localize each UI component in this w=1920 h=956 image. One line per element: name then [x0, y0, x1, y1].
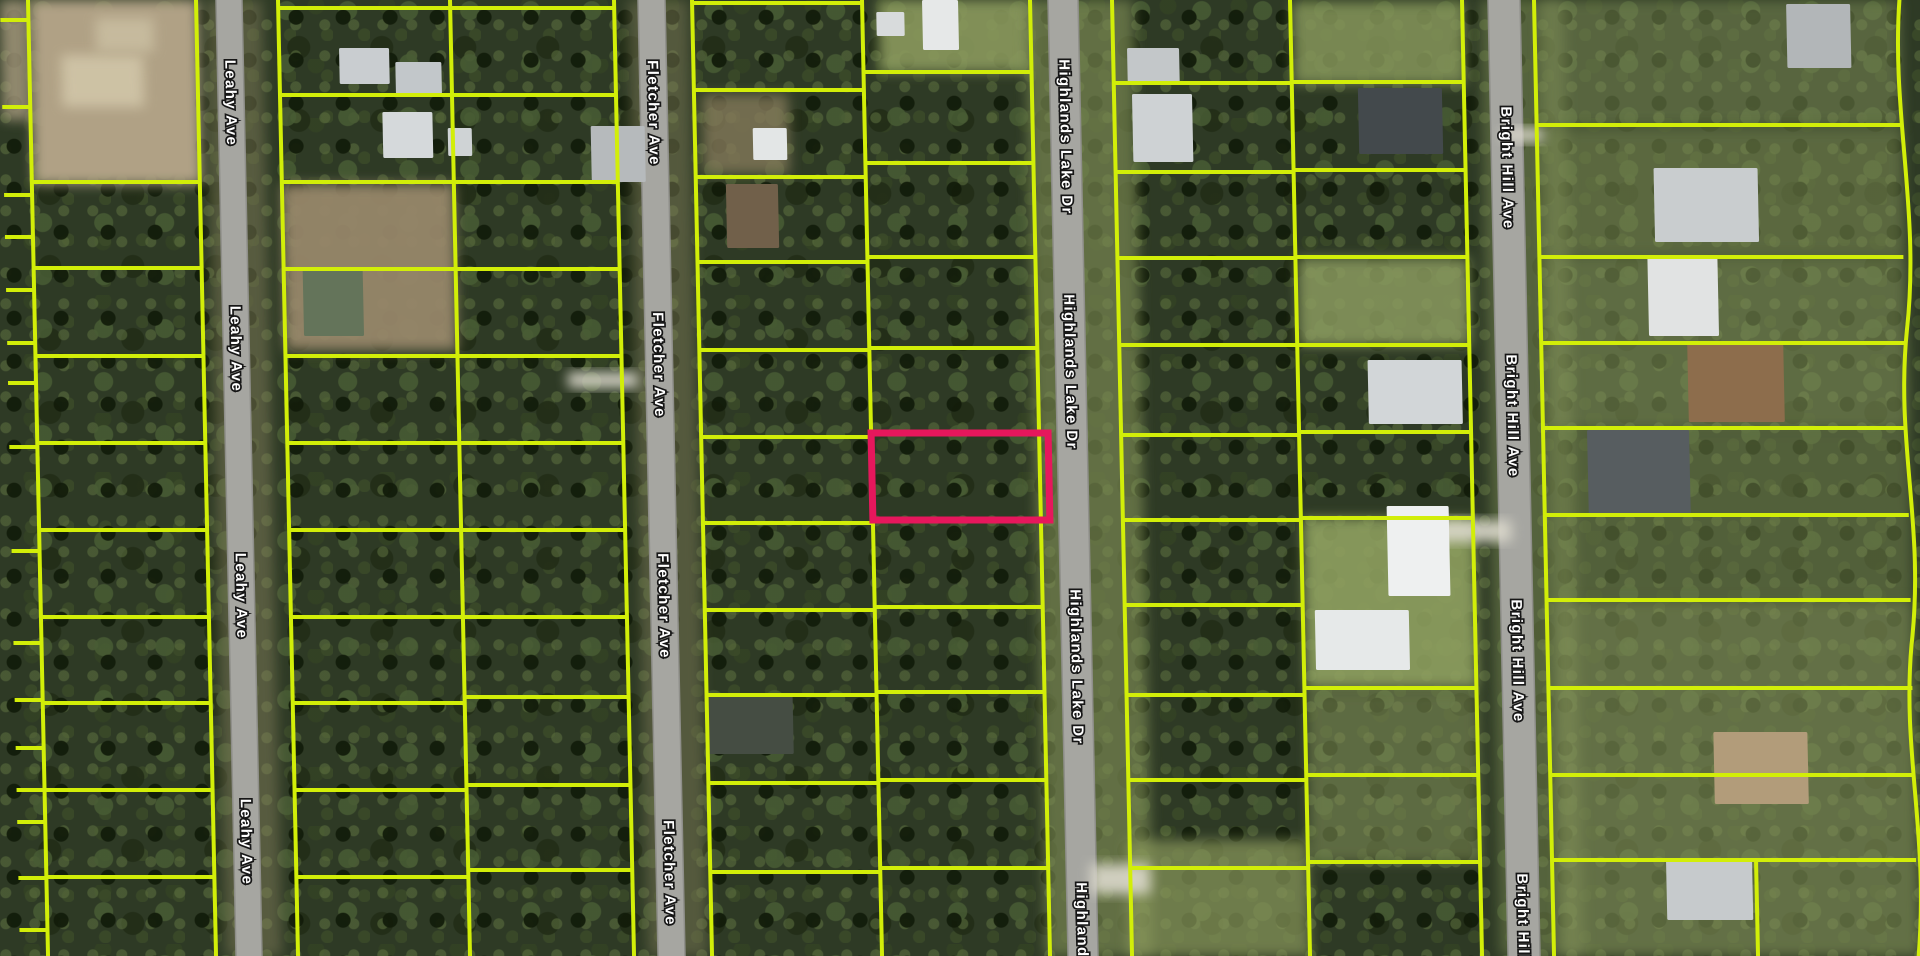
street-label: Leahy Ave [237, 799, 256, 886]
building-roof [1713, 732, 1809, 804]
building-roof [1654, 168, 1760, 242]
building-roof [382, 112, 433, 158]
clearing-patch [1126, 840, 1310, 956]
street-label: Leahy Ave [226, 306, 245, 393]
highlighted-parcel[interactable] [871, 433, 1050, 520]
building-roof [1687, 342, 1785, 422]
street-label: Bright Hill Ave [1497, 106, 1517, 229]
driveway [568, 372, 638, 388]
street-label: Leahy Ave [221, 60, 240, 147]
building-roof [705, 696, 794, 754]
clearing-patch [1297, 258, 1471, 346]
street-label: Highlands Lake Dr [1060, 294, 1080, 449]
building-roof [303, 270, 364, 336]
building-roof [1587, 430, 1691, 514]
street-label: Fletcher Ave [660, 820, 679, 926]
parcel-line-vertical [278, 0, 298, 956]
building-roof [1647, 256, 1719, 336]
building-roof [395, 62, 442, 94]
street-label: Bright Hill Ave [1502, 354, 1522, 477]
street-label: Bright Hill Ave [1508, 599, 1528, 722]
building-roof [1786, 4, 1851, 68]
building-roof [726, 184, 779, 248]
street-label: Bright Hill Ave [1513, 873, 1533, 956]
building-roof [1315, 610, 1410, 670]
building-roof [922, 0, 959, 50]
building-roof [876, 12, 905, 36]
parcel-line-vertical [1290, 0, 1310, 956]
street-label: Fletcher Ave [649, 312, 668, 418]
street-label: Leahy Ave [232, 553, 251, 640]
street-label: Highlands Lake Dr [1055, 59, 1075, 214]
building-roof [1358, 88, 1443, 154]
map-content: Leahy AveLeahy AveLeahy AveLeahy AveFlet… [0, 0, 1920, 956]
clearing-patch [1292, 2, 1466, 84]
building-roof [1666, 858, 1753, 920]
building-roof [753, 128, 788, 160]
street-label: Highlands Lake Dr [1066, 589, 1086, 744]
clearing-patch [95, 18, 154, 52]
building-roof [1368, 360, 1463, 424]
parcel-line-vertical [1756, 858, 1758, 956]
street-label: Highlands Lake Dr [1072, 882, 1092, 956]
parcel-map-overlay: Leahy AveLeahy AveLeahy AveLeahy AveFlet… [0, 0, 1920, 956]
clearing-patch [61, 55, 144, 107]
building-roof [1132, 94, 1193, 162]
building-roof [339, 48, 390, 84]
building-roof [1127, 48, 1180, 84]
street-label: Fletcher Ave [654, 553, 673, 659]
street-label: Fletcher Ave [644, 60, 663, 166]
map-canvas[interactable]: Leahy AveLeahy AveLeahy AveLeahy AveFlet… [0, 0, 1920, 956]
